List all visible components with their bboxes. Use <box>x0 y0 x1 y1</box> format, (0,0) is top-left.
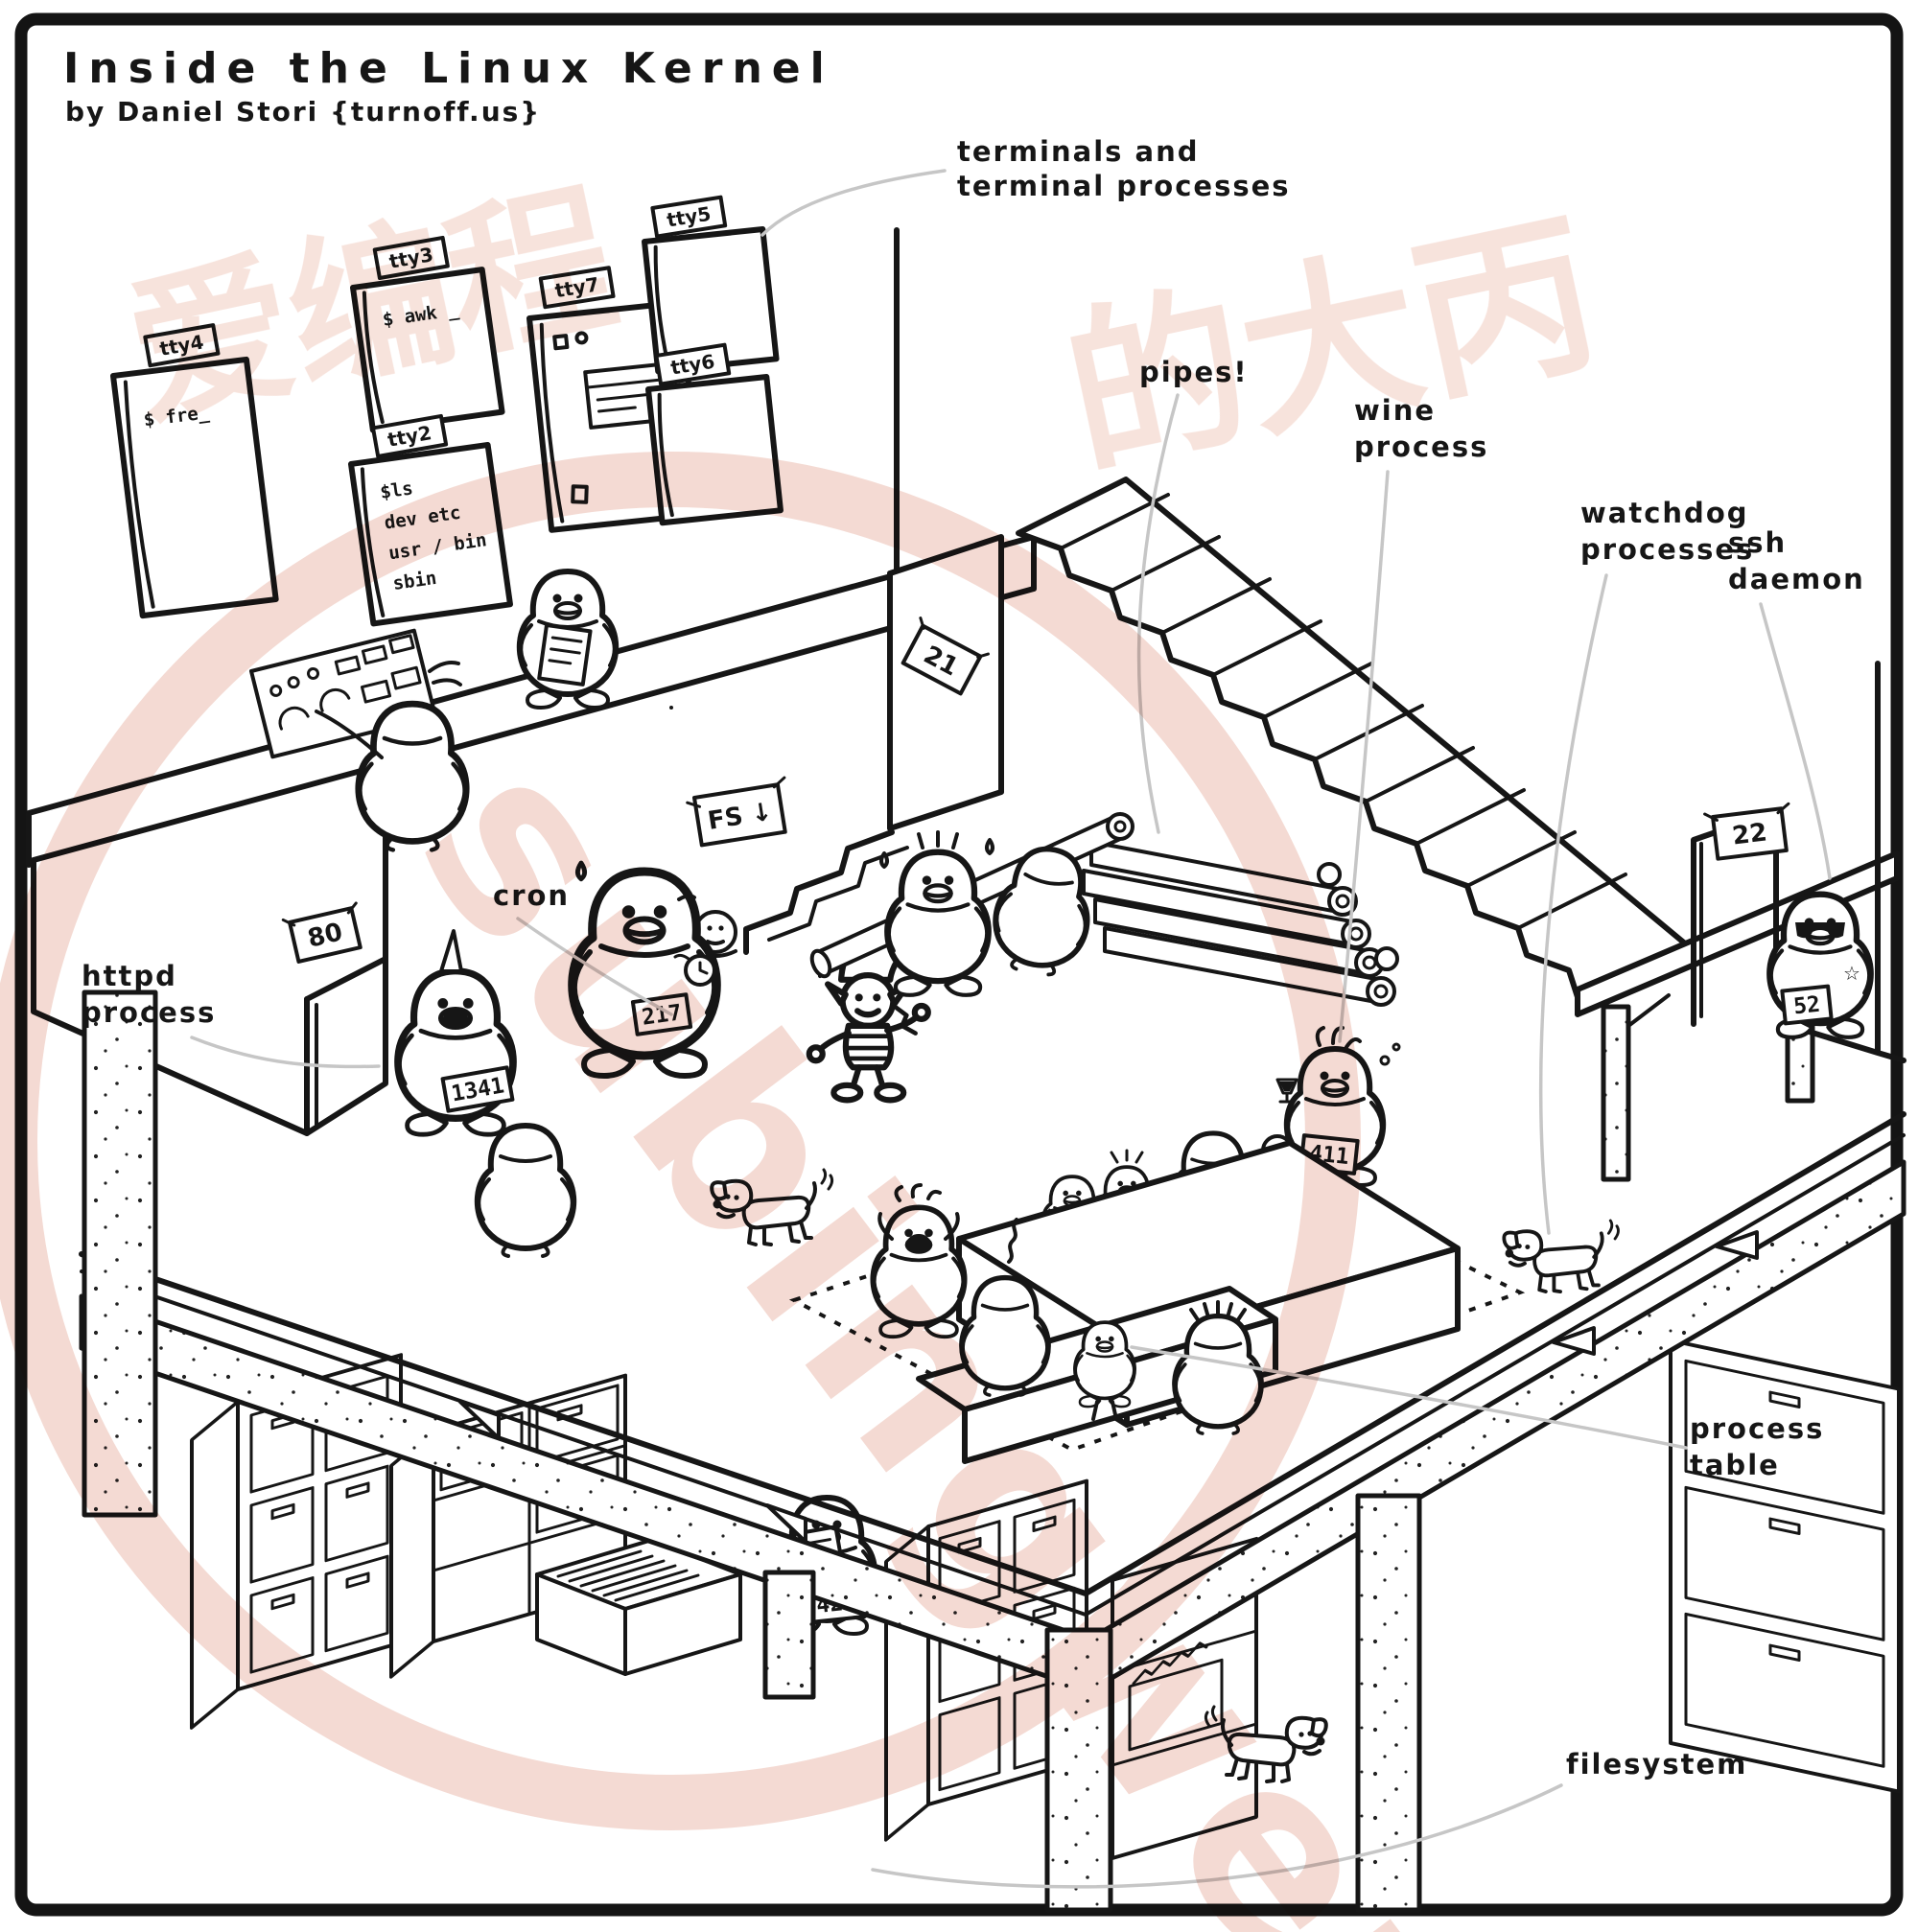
label-process-table-line1: process <box>1690 1412 1824 1445</box>
label-ssh-line1: ssh <box>1728 526 1787 559</box>
table-leg-mid <box>765 1572 813 1697</box>
label-terminals-line1: terminals and <box>957 135 1199 168</box>
door-22-sign: 22 <box>1705 803 1794 859</box>
title-block: Inside the Linux Kernel by Daniel Stori … <box>63 44 834 128</box>
pid-badge-52: 52 <box>1782 987 1831 1024</box>
dog-watchdog-icon <box>1504 1221 1618 1292</box>
page-title: Inside the Linux Kernel <box>63 44 834 93</box>
label-process-table-line2: table <box>1690 1449 1780 1481</box>
label-terminals: terminals and terminal processes <box>762 135 1291 235</box>
fs-sign: FS ↓ <box>686 778 792 847</box>
terminal-tty5: tty5 <box>641 193 776 371</box>
pid-52-text: 52 <box>1792 992 1821 1020</box>
file-cabinet-bottom-right <box>1671 1340 1899 1792</box>
penguin-walking-back <box>478 1126 573 1256</box>
watermark-cjk-b: 的大丙 <box>1049 188 1613 501</box>
penguin-ssh-daemon: ☆ 52 <box>1769 895 1870 1037</box>
label-terminals-line2: terminal processes <box>957 170 1291 202</box>
door-22-number: 22 <box>1731 818 1769 850</box>
label-httpd-line1: httpd <box>82 960 177 992</box>
label-ssh-line2: daemon <box>1728 563 1865 595</box>
sheriff-star-icon: ☆ <box>1843 962 1860 985</box>
comic-canvas: Inside the Linux Kernel by Daniel Stori … <box>0 0 1918 1932</box>
byline: by Daniel Stori {turnoff.us} <box>65 96 541 128</box>
label-filesystem-text: filesystem <box>1566 1748 1747 1781</box>
label-httpd-line2: process <box>82 996 216 1029</box>
penguin-pipe-carrier-front <box>881 832 993 995</box>
penguin-pipe-carrier-rear <box>988 842 1099 980</box>
label-watchdog-line1: watchdog <box>1580 497 1749 529</box>
kernel-comic-illustration: Inside the Linux Kernel by Daniel Stori … <box>0 0 1918 1932</box>
